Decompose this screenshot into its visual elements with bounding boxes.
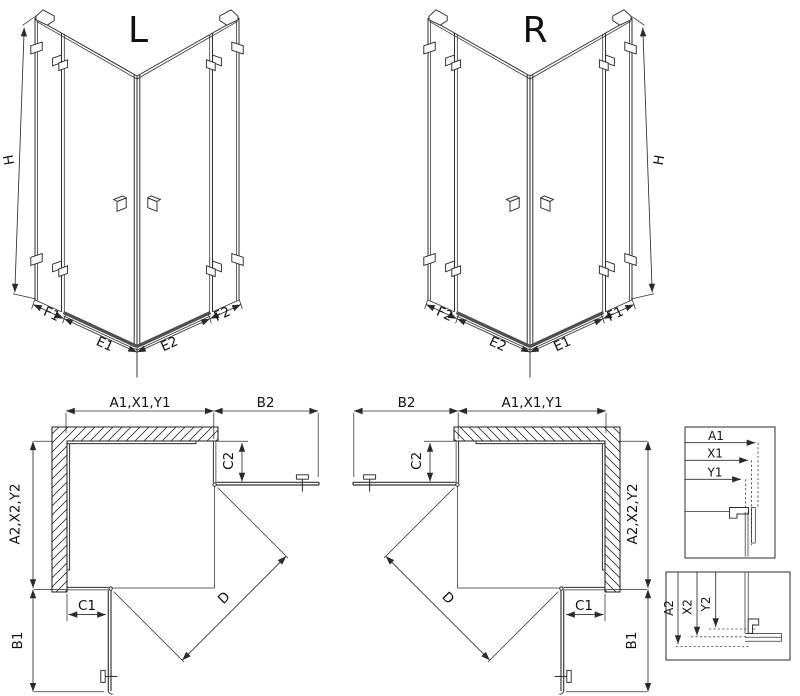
detail-panel-depth: A2 X2 Y2: [662, 572, 790, 660]
label-return-c2: C2: [409, 452, 425, 470]
label-y2: Y2: [699, 597, 713, 613]
label-width-top: A1,X1,Y1: [501, 395, 562, 411]
bottom-profile-section: [745, 572, 782, 641]
label-door-bottom-b1: B1: [624, 632, 640, 650]
detail-panel-width: A1 X1 Y1: [685, 427, 775, 558]
label-return-c1: C1: [575, 598, 593, 614]
plan-geometry-mirrored: [353, 411, 620, 694]
label-depth-side: A2,X2,Y2: [8, 483, 24, 544]
label-return-c2: C2: [221, 452, 237, 470]
label-f1: F1: [605, 304, 627, 325]
label-f2: F2: [434, 304, 456, 325]
label-y1: Y1: [707, 466, 723, 480]
label-door-top-b2: B2: [257, 395, 275, 411]
label-door-top-b2: B2: [398, 395, 416, 411]
shower-enclosure-diagram: L H F1 E1 E2 F2 R H F2 E2 E1 F1 A1,X1,Y1…: [0, 0, 800, 696]
label-f2: F2: [212, 304, 234, 325]
detail-frame: [685, 427, 775, 558]
wall-profile-section: [730, 508, 756, 557]
technical-drawing-page: L H F1 E1 E2 F2 R H F2 E2 E1 F1 A1,X1,Y1…: [0, 0, 800, 696]
side-dimension-lines: [33, 441, 104, 692]
label-x1: X1: [707, 447, 723, 461]
enclosure-geometry-mirrored: [424, 10, 654, 378]
label-a1: A1: [708, 429, 724, 443]
variant-label-l: L: [128, 10, 148, 51]
label-x2: X2: [681, 599, 695, 615]
iso-view-left: L H F1 E1 E2 F2: [1, 10, 243, 378]
label-height-h: H: [1, 153, 19, 166]
plan-view-left: A1,X1,Y1 B2 C2 A2,X2,Y2 C1 B1 D: [8, 395, 320, 694]
label-return-c1: C1: [78, 598, 96, 614]
label-diagonal-d: D: [438, 589, 457, 608]
variant-label-r: R: [522, 10, 547, 51]
plan-geometry: [52, 411, 319, 694]
label-a2: A2: [662, 600, 676, 616]
label-height-h: H: [651, 154, 669, 167]
enclosure-geometry: [13, 10, 243, 378]
detail-frame: [666, 572, 790, 660]
label-door-bottom-b1: B1: [10, 632, 26, 650]
label-diagonal-d: D: [215, 589, 234, 608]
label-depth-side: A2,X2,Y2: [625, 483, 641, 544]
label-width-top: A1,X1,Y1: [109, 395, 170, 411]
plan-view-right: B2 A1,X1,Y1 C2 A2,X2,Y2 C1 B1 D: [353, 395, 648, 694]
label-f1: F1: [41, 304, 63, 325]
iso-view-right: R H F2 E2 E1 F1: [424, 10, 668, 378]
